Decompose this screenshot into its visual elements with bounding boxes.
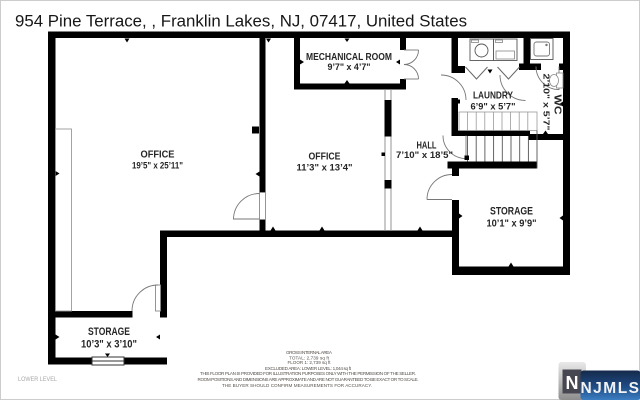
svg-text:STORAGE: STORAGE [88,326,130,338]
svg-text:OFFICE: OFFICE [141,150,175,161]
svg-text:NJMLS: NJMLS [580,380,640,397]
svg-text:N: N [566,373,579,393]
svg-text:LOWER LEVEL: LOWER LEVEL [18,376,57,383]
svg-text:OFFICE: OFFICE [309,152,341,163]
svg-text:THIS FLOOR PLAN IS PROVIDED FO: THIS FLOOR PLAN IS PROVIDED FOR ILLUSTRA… [200,371,416,376]
svg-text:9’7" x 4’7": 9’7" x 4’7" [328,61,371,72]
svg-text:954 Pine Terrace, , Franklin L: 954 Pine Terrace, , Franklin Lakes, NJ, … [15,12,467,30]
svg-text:WC: WC [552,95,563,115]
svg-text:THE BUYER SHOULD CONFIRM MEASU: THE BUYER SHOULD CONFIRM MEASUREMENTS FO… [222,383,372,388]
svg-text:FLOOR 1: 2,739 sq ft: FLOOR 1: 2,739 sq ft [288,360,332,365]
svg-text:ROOM POSITIONS AND DIMENSIONS: ROOM POSITIONS AND DIMENSIONS ARE APPROX… [198,377,419,382]
svg-text:GROSS INTERNAL AREA: GROSS INTERNAL AREA [286,350,333,355]
svg-text:STORAGE: STORAGE [490,206,533,218]
svg-text:6’9" x 5’7": 6’9" x 5’7" [471,101,516,112]
svg-text:10’3" x 3’10": 10’3" x 3’10" [81,339,137,351]
svg-text:19’5" x 25’11": 19’5" x 25’11" [132,160,183,171]
svg-text:2’10" x 5’7": 2’10" x 5’7" [542,74,552,131]
svg-text:10’1" x 9’9": 10’1" x 9’9" [487,219,537,230]
svg-text:7’10" x 18’5": 7’10" x 18’5" [396,149,453,160]
svg-text:11’3" x 13’4": 11’3" x 13’4" [297,163,353,174]
